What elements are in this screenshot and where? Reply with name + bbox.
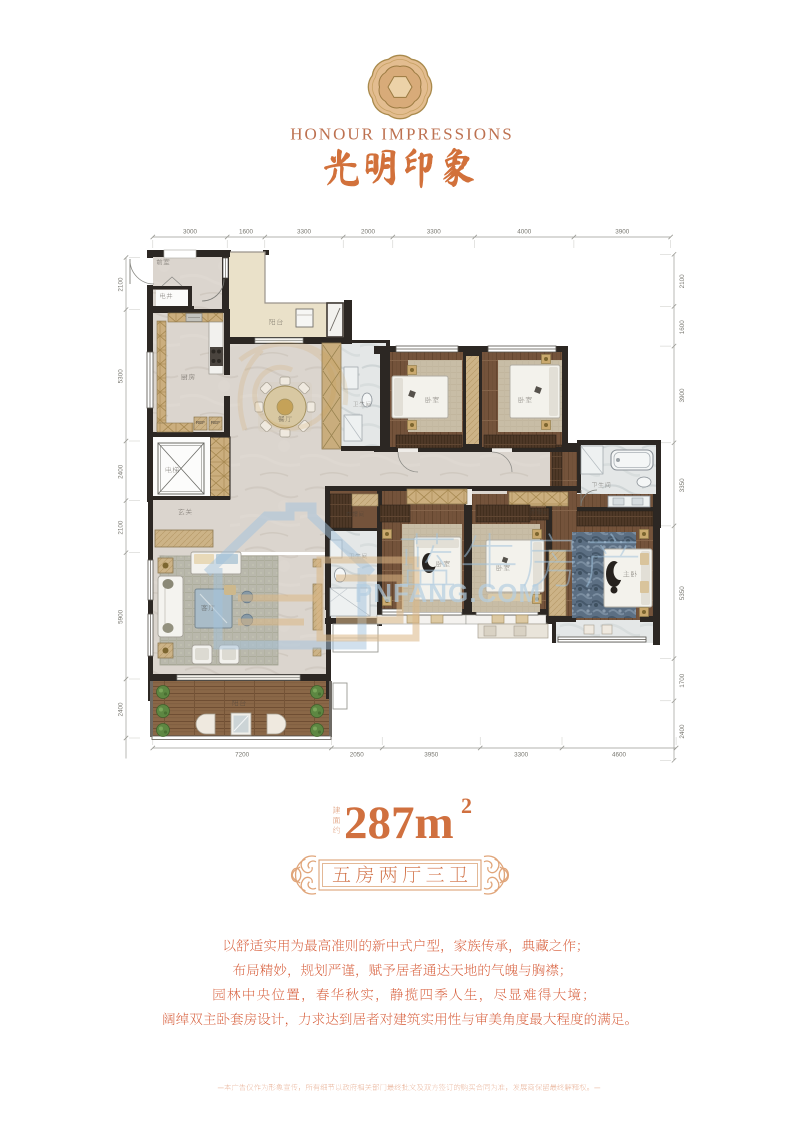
- svg-text:REF: REF: [196, 420, 205, 425]
- svg-text:3900: 3900: [679, 388, 686, 403]
- svg-text:1700: 1700: [679, 673, 686, 688]
- svg-text:3000: 3000: [183, 229, 198, 236]
- svg-text:3900: 3900: [615, 229, 630, 236]
- svg-text:3350: 3350: [679, 478, 686, 493]
- svg-text:4600: 4600: [612, 752, 627, 759]
- svg-text:4000: 4000: [517, 229, 532, 236]
- svg-text:PNFANG.COM: PNFANG.COM: [355, 578, 541, 608]
- svg-text:3300: 3300: [427, 229, 442, 236]
- svg-text:2400: 2400: [118, 464, 125, 479]
- svg-text:2100: 2100: [118, 277, 125, 292]
- svg-text:2100: 2100: [118, 520, 125, 535]
- svg-text:HONOUR IMPRESSIONS: HONOUR IMPRESSIONS: [290, 125, 514, 144]
- svg-text:5300: 5300: [118, 369, 125, 384]
- svg-text:2400: 2400: [679, 724, 686, 739]
- svg-text:1600: 1600: [679, 320, 686, 335]
- svg-text:REF: REF: [211, 420, 220, 425]
- svg-text:7200: 7200: [235, 752, 250, 759]
- svg-text:1600: 1600: [239, 229, 254, 236]
- svg-text:5900: 5900: [118, 609, 125, 624]
- svg-text:3300: 3300: [297, 229, 312, 236]
- svg-text:2: 2: [461, 793, 472, 818]
- svg-text:3300: 3300: [514, 752, 529, 759]
- svg-text:3950: 3950: [424, 752, 439, 759]
- svg-text:2000: 2000: [361, 229, 376, 236]
- svg-text:287m: 287m: [344, 797, 454, 849]
- svg-text:2400: 2400: [118, 702, 125, 717]
- svg-text:2100: 2100: [679, 274, 686, 289]
- svg-text:2050: 2050: [350, 752, 365, 759]
- svg-text:5350: 5350: [679, 586, 686, 601]
